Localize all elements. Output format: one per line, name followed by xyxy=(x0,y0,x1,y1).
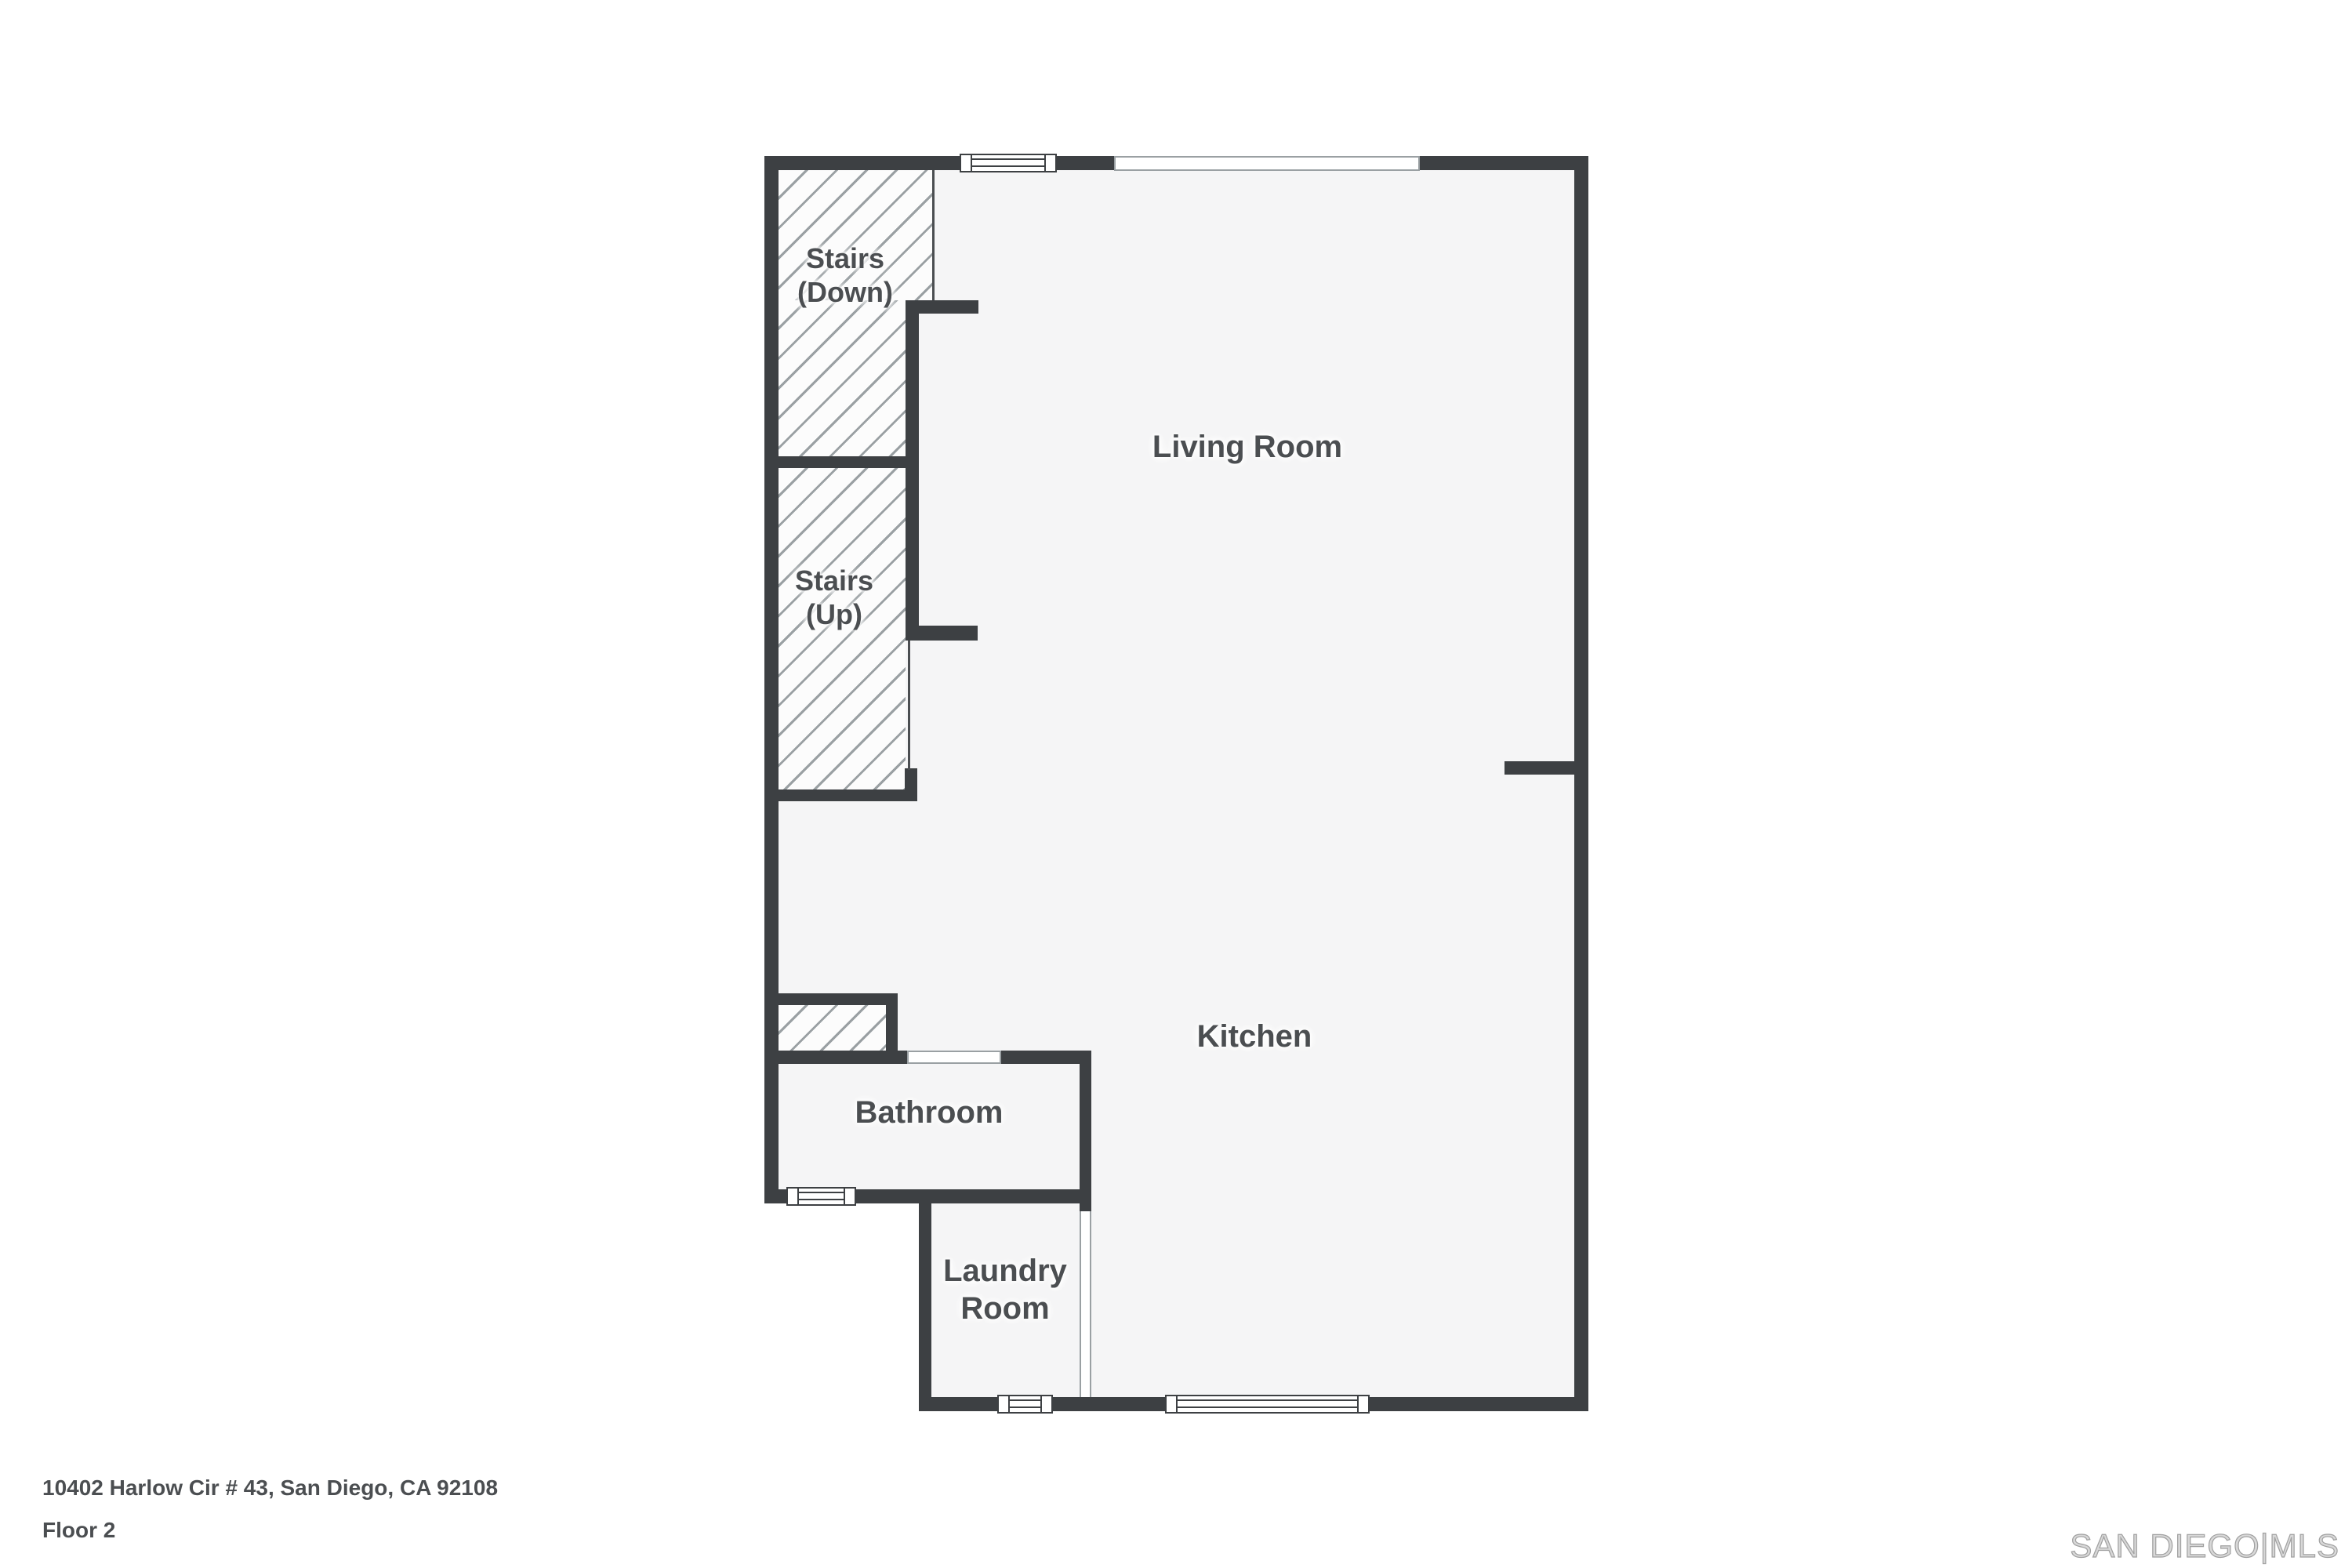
window-kitchen-bottom xyxy=(1165,1395,1370,1414)
wall-closet-right xyxy=(886,993,898,1064)
window-end-cap xyxy=(1044,154,1057,172)
window-top-small xyxy=(960,154,1057,172)
stairs-down-open-edge xyxy=(932,170,935,300)
wall-left xyxy=(764,156,779,1203)
room-label-kitchen: Kitchen xyxy=(1197,1018,1312,1055)
doorway-laundry-kitchen xyxy=(1080,1211,1091,1397)
window-top-long xyxy=(1114,156,1420,171)
window-pane-line xyxy=(1178,1406,1357,1408)
window-pane-line xyxy=(972,158,1044,160)
stairs-down-hatch-lower xyxy=(779,300,906,457)
wall-stairs-bottom xyxy=(764,789,917,801)
wall-bathroom-top-right xyxy=(1001,1051,1091,1064)
doorway-bathroom xyxy=(907,1051,1001,1064)
wall-right xyxy=(1574,156,1588,1411)
wall-closet-top xyxy=(764,993,898,1005)
window-pane-line xyxy=(1010,1399,1040,1401)
room-label-bathroom: Bathroom xyxy=(855,1094,1004,1131)
window-bathroom xyxy=(786,1187,856,1206)
wall-kitchen-stub xyxy=(1504,761,1574,775)
wall-door-jamb-stairs xyxy=(905,768,917,792)
wall-bathroom-right xyxy=(1080,1051,1091,1211)
room-label-stairs-up: Stairs (Up) xyxy=(795,564,873,631)
window-end-cap xyxy=(844,1187,856,1206)
window-end-cap xyxy=(1040,1395,1053,1414)
wall-laundry-left xyxy=(919,1203,931,1397)
window-pane-line xyxy=(972,165,1044,167)
floorplan: Stairs (Down) Stairs (Up) Living Room Ki… xyxy=(0,0,2352,1568)
room-label-living-room: Living Room xyxy=(1152,428,1342,466)
wall-stairs-right xyxy=(906,300,919,641)
window-end-cap xyxy=(960,154,972,172)
window-end-cap xyxy=(1357,1395,1370,1414)
wall-stub-lower xyxy=(906,626,978,641)
floor-label: Floor 2 xyxy=(42,1518,115,1543)
window-pane-line xyxy=(799,1199,844,1200)
window-pane-line xyxy=(799,1192,844,1193)
window-end-cap xyxy=(1165,1395,1178,1414)
closet-hatch xyxy=(779,1005,886,1051)
room-label-laundry-room: Laundry Room xyxy=(943,1252,1067,1327)
window-pane-line xyxy=(1010,1406,1040,1408)
window-end-cap xyxy=(786,1187,799,1206)
wall-stub-upper xyxy=(906,300,978,314)
mls-watermark: SAN DIEGO|MLS xyxy=(2070,1527,2339,1565)
address-text: 10402 Harlow Cir # 43, San Diego, CA 921… xyxy=(42,1475,498,1501)
stairs-up-door-line xyxy=(908,641,910,770)
room-label-stairs-down: Stairs (Down) xyxy=(797,241,893,309)
window-end-cap xyxy=(997,1395,1010,1414)
window-pane-line xyxy=(1178,1399,1357,1401)
wall-stairs-mid xyxy=(764,456,919,468)
window-laundry xyxy=(997,1395,1053,1414)
